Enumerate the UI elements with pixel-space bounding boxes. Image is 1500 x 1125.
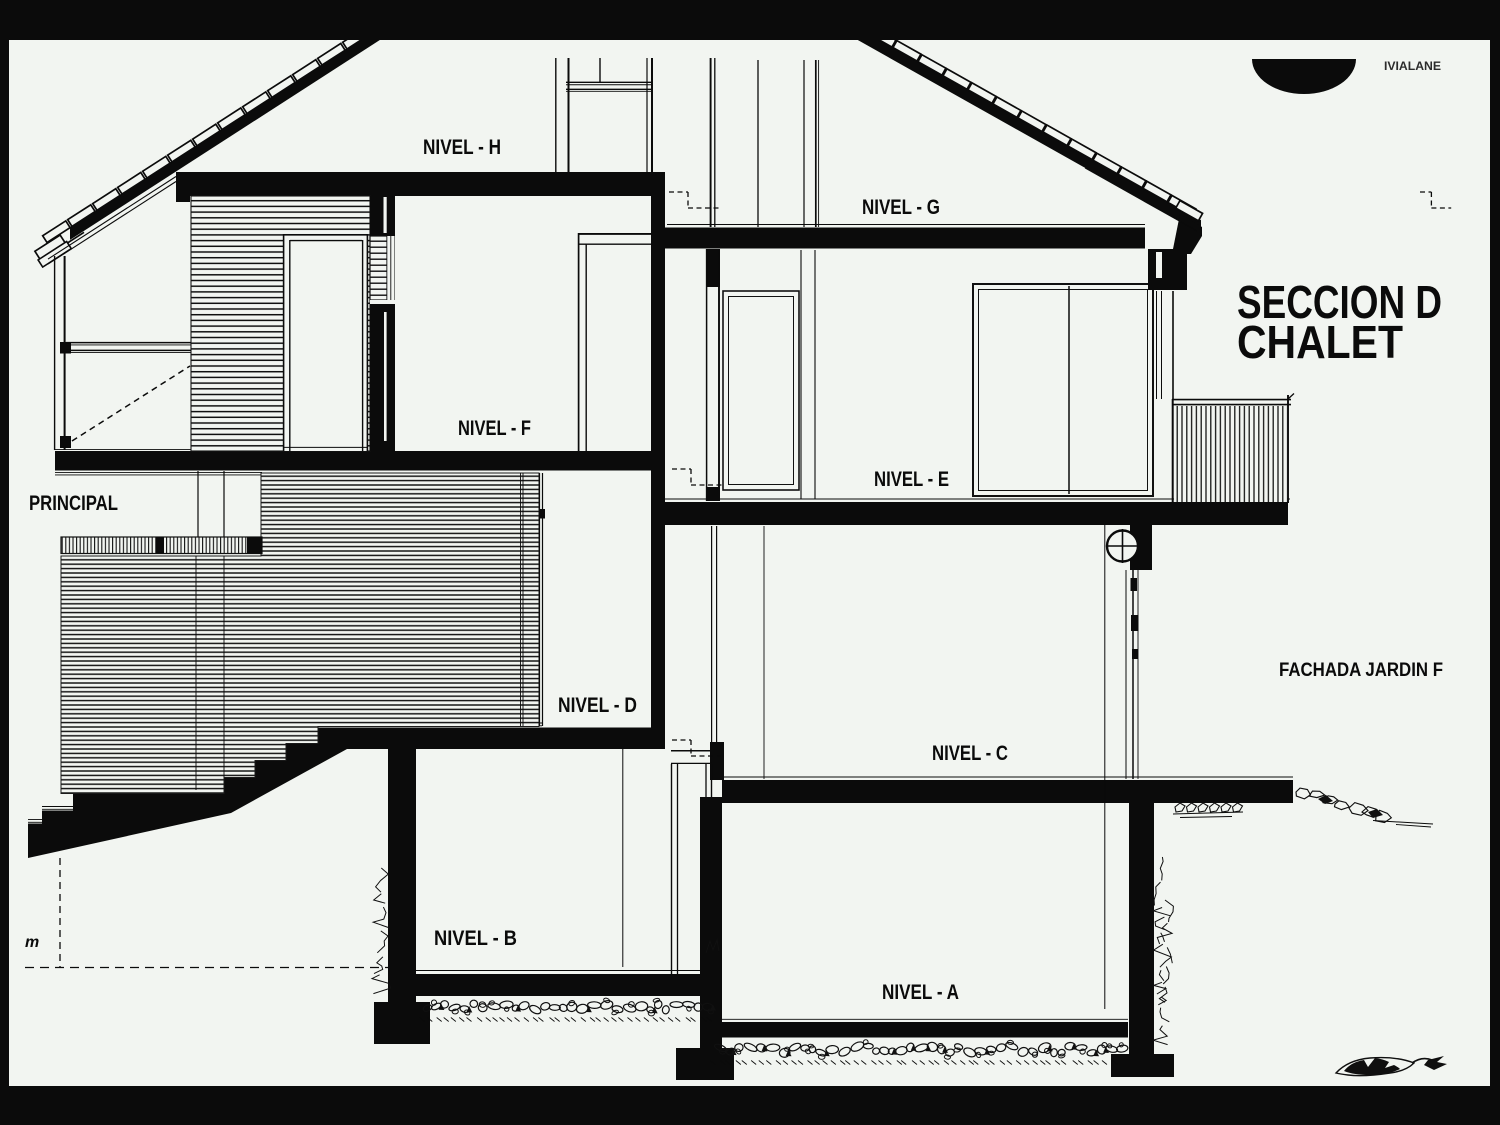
svg-text:NIVEL - E: NIVEL - E [874,468,949,491]
svg-text:NIVEL - C: NIVEL - C [932,742,1008,765]
svg-text:NIVEL - B: NIVEL - B [434,927,517,950]
svg-text:NIVEL - G: NIVEL - G [862,196,940,219]
svg-text:NIVEL - H: NIVEL - H [423,136,501,159]
svg-text:PRINCIPAL: PRINCIPAL [29,492,118,515]
svg-text:FACHADA JARDIN F: FACHADA JARDIN F [1279,660,1443,681]
svg-text:IVIALANE: IVIALANE [1384,59,1441,73]
svg-text:m: m [25,934,39,951]
svg-text:NIVEL - F: NIVEL - F [458,417,531,440]
svg-text:CHALET: CHALET [1237,316,1403,368]
svg-text:NIVEL - D: NIVEL - D [558,694,637,717]
svg-text:NIVEL - A: NIVEL - A [882,981,959,1004]
